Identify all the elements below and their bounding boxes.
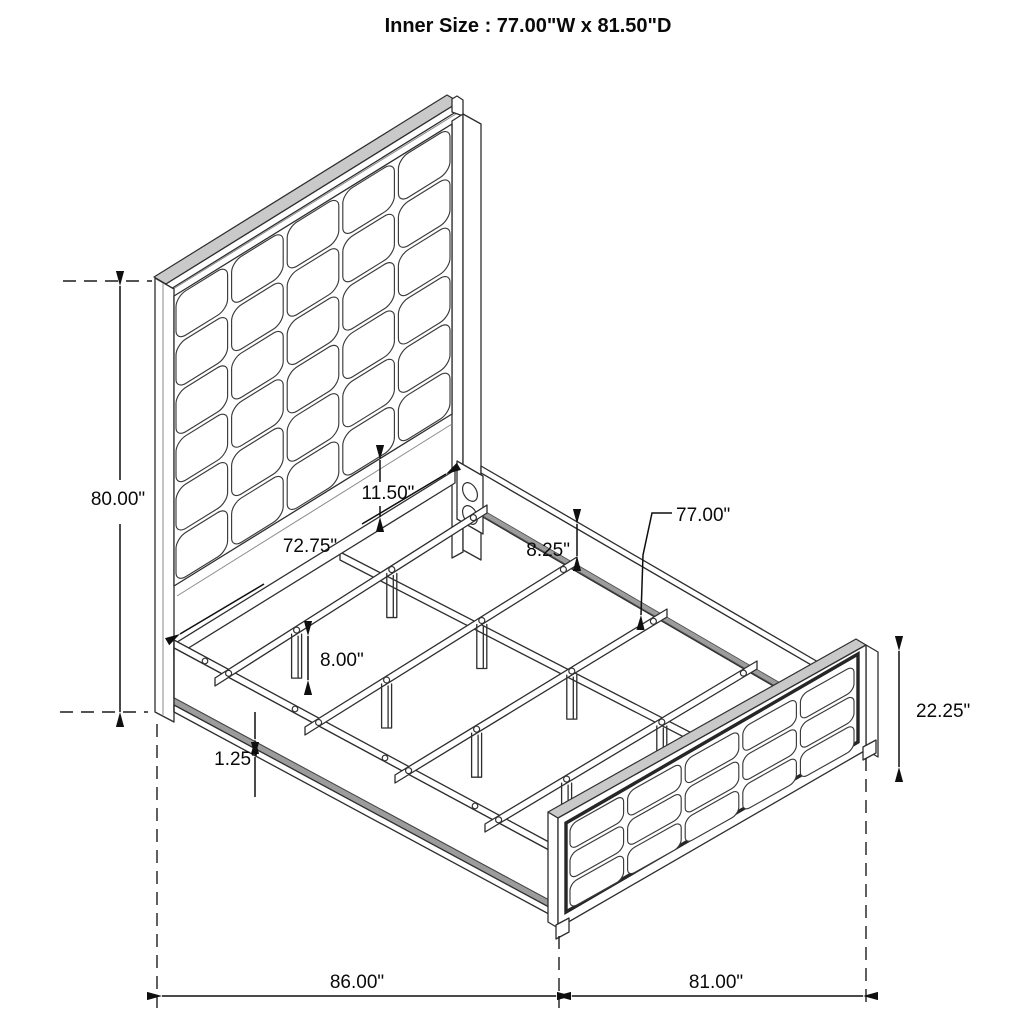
support-leg [472,733,482,777]
screw-hole [470,515,476,521]
screw-hole [202,658,208,664]
mattress-slat [305,557,577,735]
screw-hole [650,618,656,624]
screw-hole [292,706,298,712]
bed-dimension-diagram: Inner Size : 77.00"W x 81.50"D [0,0,1024,1024]
screw-hole [474,726,480,732]
headboard-post-tab [452,96,463,116]
screw-hole [659,719,665,725]
support-leg [292,634,302,678]
screw-hole [389,567,395,573]
diagram-title: Inner Size : 77.00"W x 81.50"D [385,15,672,37]
footboard-left-edge [548,812,558,928]
screw-hole [472,803,478,809]
dim-overall-width: 81.00" [689,972,743,993]
dim-rail-height: 8.25" [526,540,570,561]
screw-hole [384,677,390,683]
dim-slat-length: 77.00" [676,505,730,526]
support-leg [382,684,392,728]
headboard-left-post [155,278,174,722]
screw-hole [382,755,388,761]
screw-hole [226,670,232,676]
screw-hole [560,567,566,573]
screw-hole [316,720,322,726]
screw-hole [740,670,746,676]
dim-headboard-height: 80.00" [91,489,145,510]
dim-inner-width: 72.75" [283,536,337,557]
dim-footboard-height: 22.25" [916,701,970,722]
screw-hole [564,776,570,782]
screw-hole [294,627,300,633]
mattress-slat [395,609,667,783]
dim-overall-depth: 86.00" [330,972,384,993]
screw-hole [406,768,412,774]
dim-leg-height: 8.00" [320,650,364,671]
dim-panel-gap: 11.50" [362,483,415,504]
dim-rail-lip: 1.25" [214,749,258,770]
screw-hole [496,817,502,823]
diagram-page: Inner Size : 77.00"W x 81.50"D [0,0,1024,1024]
bed-frame [174,461,856,920]
screw-hole [569,668,575,674]
screw-hole [479,618,485,624]
near-side-rail [174,640,560,920]
